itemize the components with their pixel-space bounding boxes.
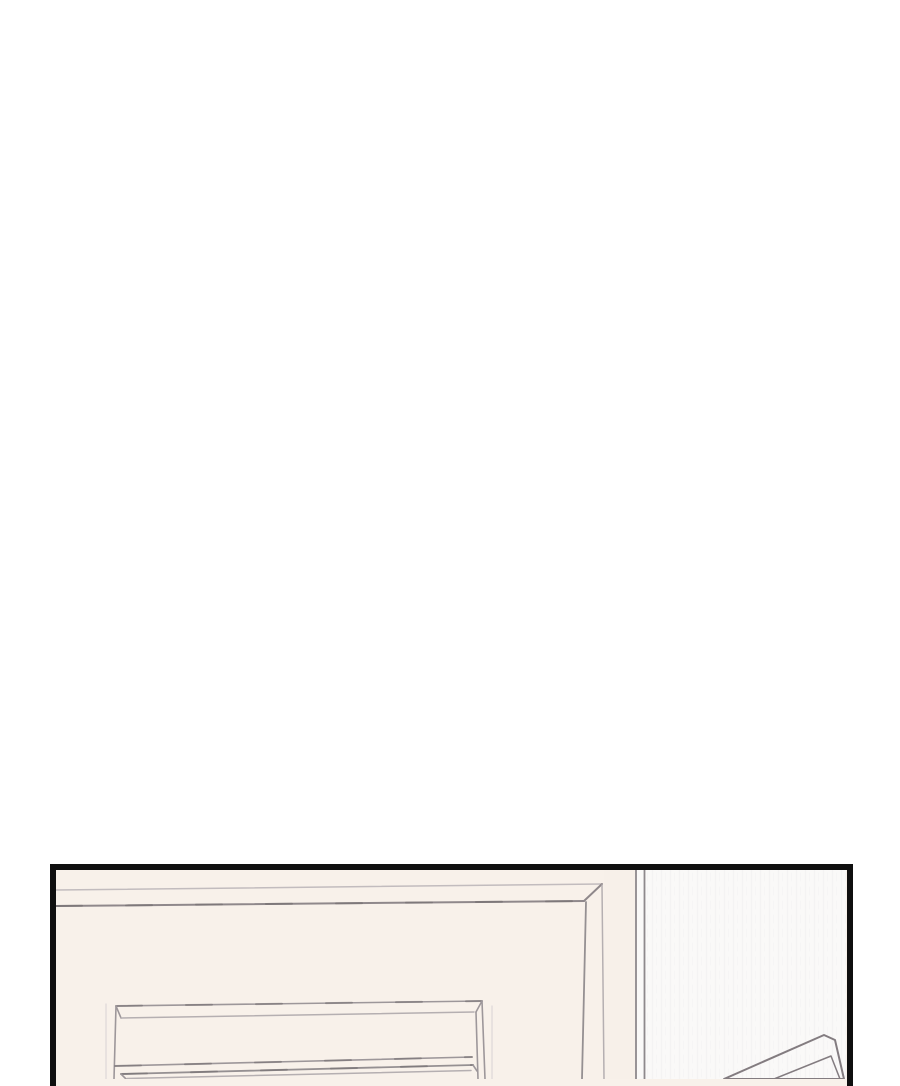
- wall-texture: [645, 870, 846, 1079]
- webtoon-page: [0, 0, 900, 1080]
- wardrobe-side-fill: [604, 870, 637, 1079]
- comic-panel: [50, 864, 853, 1086]
- panel-artwork: [56, 870, 846, 1079]
